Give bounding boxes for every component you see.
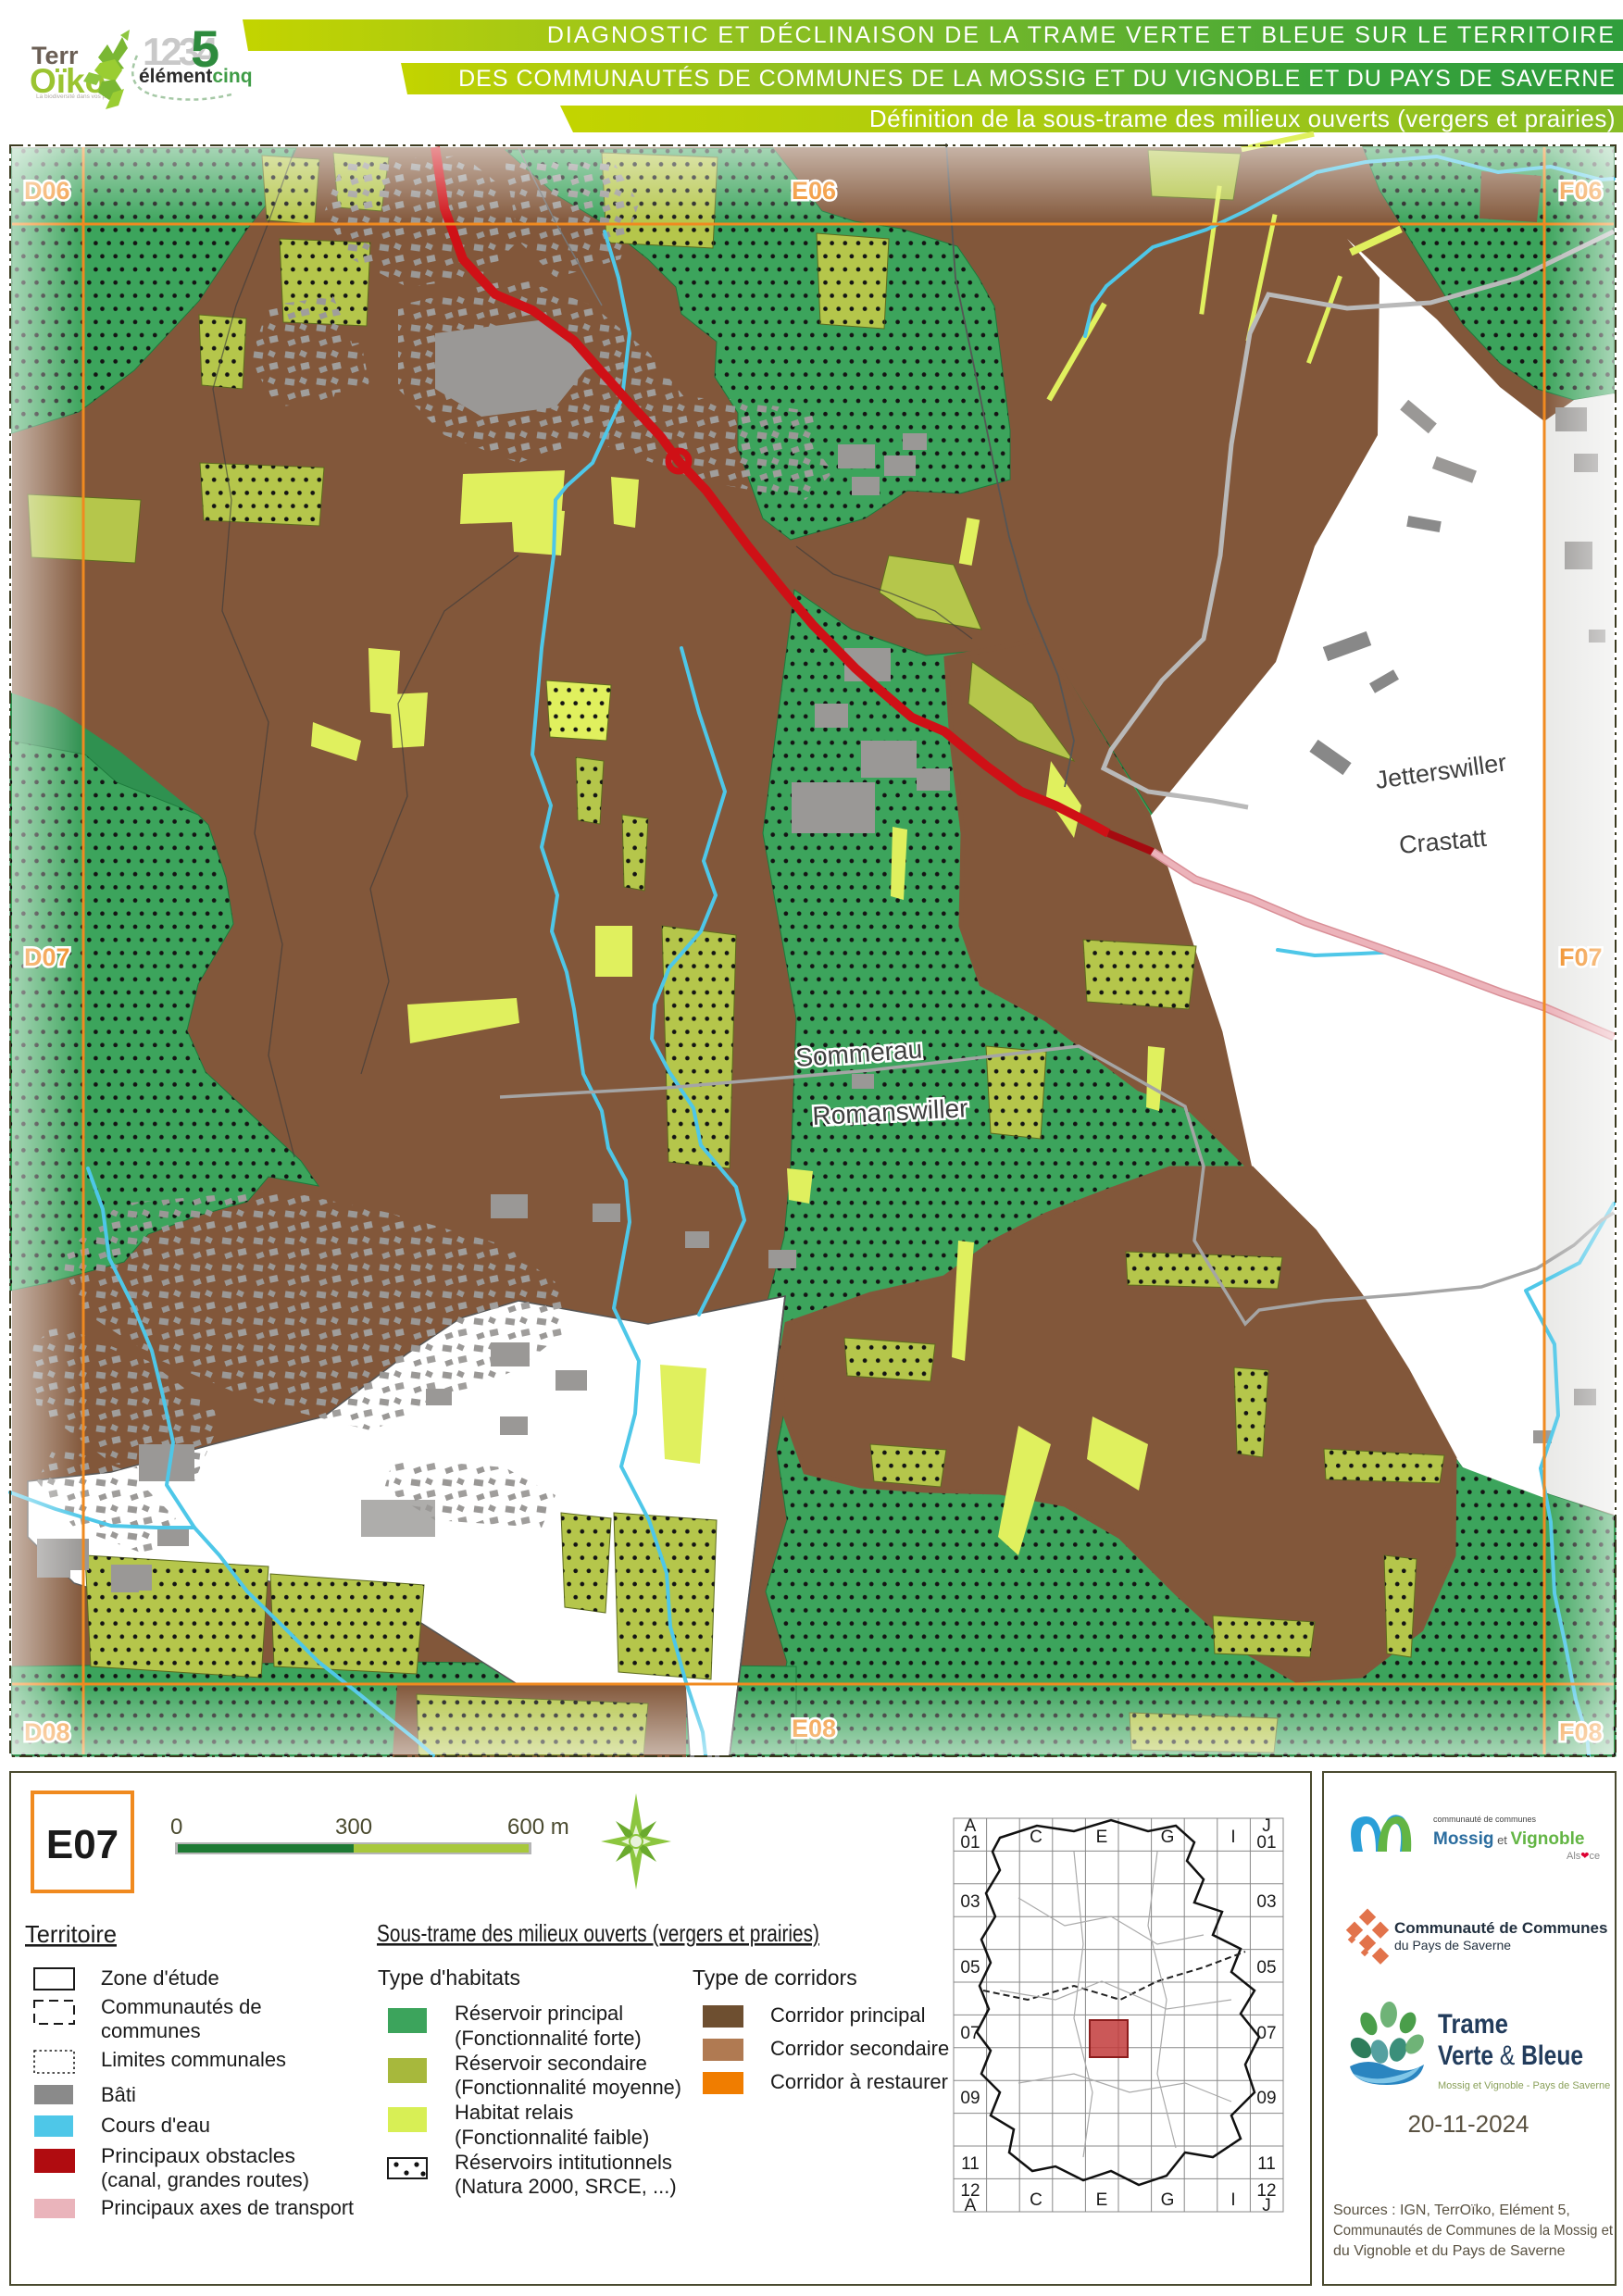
svg-text:Mossig et Vignoble - Pays de S: Mossig et Vignoble - Pays de Saverne <box>1438 2080 1610 2091</box>
svg-text:Habitat relais: Habitat relais <box>455 2101 573 2124</box>
svg-text:Sous-trame des milieux ouverts: Sous-trame des milieux ouverts (vergers … <box>377 1919 819 1947</box>
svg-text:Communautés de Communes de la: Communautés de Communes de la Mossig et <box>1333 2223 1614 2239</box>
svg-text:Réservoirs intitutionnels: Réservoirs intitutionnels <box>455 2151 672 2174</box>
svg-text:communes: communes <box>101 2019 201 2042</box>
svg-text:Réservoir secondaire: Réservoir secondaire <box>455 2052 647 2075</box>
svg-text:E: E <box>1096 1828 1108 1847</box>
svg-text:0: 0 <box>170 1815 182 1840</box>
svg-text:300: 300 <box>335 1815 372 1840</box>
svg-text:05: 05 <box>960 1958 980 1978</box>
svg-text:J: J <box>1262 2196 1271 2215</box>
svg-text:(Fonctionnalité faible): (Fonctionnalité faible) <box>455 2126 649 2149</box>
svg-text:09: 09 <box>960 2089 980 2108</box>
svg-text:communauté de communes: communauté de communes <box>1433 1815 1537 1824</box>
svg-text:(Fonctionnalité moyenne): (Fonctionnalité moyenne) <box>455 2076 681 2099</box>
svg-text:Corridor à restaurer: Corridor à restaurer <box>770 2070 948 2093</box>
svg-text:20-11-2024: 20-11-2024 <box>1407 2110 1529 2138</box>
svg-text:Corridor secondaire: Corridor secondaire <box>770 2037 949 2060</box>
svg-text:Communautés de: Communautés de <box>101 1995 262 2018</box>
svg-text:Cours d'eau: Cours d'eau <box>101 2114 210 2137</box>
svg-text:07: 07 <box>1256 2024 1276 2043</box>
svg-text:Limites communales: Limites communales <box>101 2048 286 2071</box>
svg-text:du Pays de Saverne: du Pays de Saverne <box>1394 1938 1511 1953</box>
svg-text:Verte & Bleue: Verte & Bleue <box>1438 2040 1583 2071</box>
svg-text:(Natura 2000, SRCE, ...): (Natura 2000, SRCE, ...) <box>455 2175 677 2198</box>
svg-text:A: A <box>965 2196 977 2215</box>
svg-text:Corridor principal: Corridor principal <box>770 2003 926 2027</box>
svg-text:Zone d'étude: Zone d'étude <box>101 1966 219 1990</box>
svg-text:09: 09 <box>1256 2089 1276 2108</box>
svg-text:03: 03 <box>1256 1892 1276 1912</box>
svg-text:05: 05 <box>1256 1958 1276 1978</box>
svg-text:Principaux axes de transport: Principaux axes de transport <box>101 2196 354 2219</box>
svg-text:600 m: 600 m <box>507 1815 569 1840</box>
svg-text:E07: E07 <box>46 1822 119 1867</box>
svg-text:(canal, grandes routes): (canal, grandes routes) <box>101 2168 309 2191</box>
svg-text:Communauté de Communes: Communauté de Communes <box>1394 1919 1607 1937</box>
svg-text:du Vignoble et du Pays de Save: du Vignoble et du Pays de Saverne <box>1333 2243 1566 2259</box>
svg-text:G: G <box>1161 2190 1175 2210</box>
svg-text:Principaux obstacles: Principaux obstacles <box>101 2144 295 2167</box>
svg-text:01: 01 <box>1256 1833 1276 1853</box>
svg-text:11: 11 <box>1257 2154 1276 2174</box>
svg-text:Sources : IGN, TerrOïko, Eléme: Sources : IGN, TerrOïko, Elément 5, <box>1333 2202 1570 2218</box>
svg-text:Bâti: Bâti <box>101 2083 136 2106</box>
svg-text:(Fonctionnalité forte): (Fonctionnalité forte) <box>455 2027 642 2050</box>
svg-text:I: I <box>1230 1828 1235 1847</box>
svg-text:03: 03 <box>960 1892 980 1912</box>
svg-text:G: G <box>1161 1828 1175 1847</box>
svg-text:Trame: Trame <box>1438 2009 1508 2040</box>
svg-text:E: E <box>1096 2190 1108 2210</box>
svg-text:Territoire: Territoire <box>25 1920 117 1948</box>
svg-text:01: 01 <box>960 1833 980 1853</box>
svg-text:Als❤ce: Als❤ce <box>1567 1851 1600 1862</box>
svg-text:I: I <box>1230 2190 1235 2210</box>
svg-text:Mossig et Vignoble: Mossig et Vignoble <box>1433 1829 1584 1849</box>
svg-text:11: 11 <box>961 2154 980 2174</box>
svg-text:Type d'habitats: Type d'habitats <box>378 1965 520 1990</box>
svg-text:C: C <box>1030 2190 1042 2210</box>
svg-text:Type de corridors: Type de corridors <box>693 1965 857 1990</box>
svg-text:C: C <box>1030 1828 1042 1847</box>
svg-text:Réservoir principal: Réservoir principal <box>455 2002 623 2025</box>
